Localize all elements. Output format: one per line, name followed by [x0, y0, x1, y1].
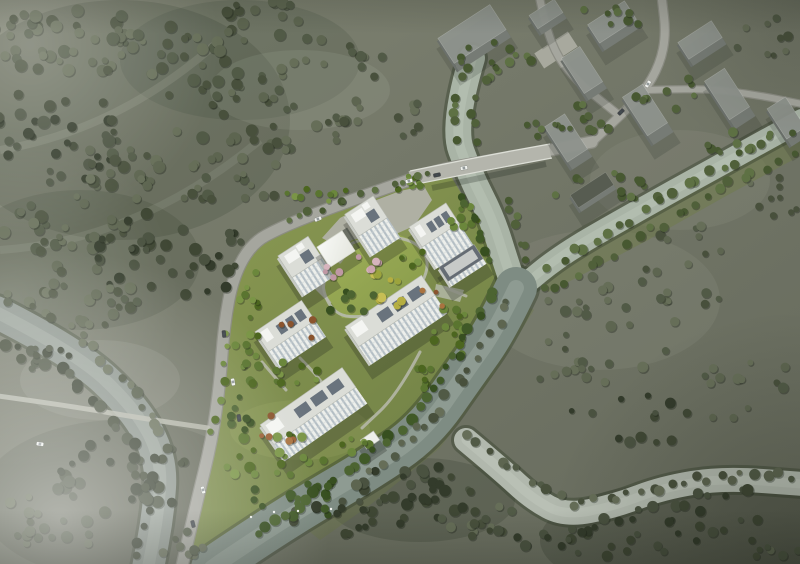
vignette-top-right [0, 0, 800, 564]
vignette-top [0, 0, 800, 34]
atmosphere-layer [0, 0, 800, 564]
vignette-bottom [0, 510, 800, 564]
aerial-rendering-canvas [0, 0, 800, 564]
aerial-site-rendering [0, 0, 800, 564]
